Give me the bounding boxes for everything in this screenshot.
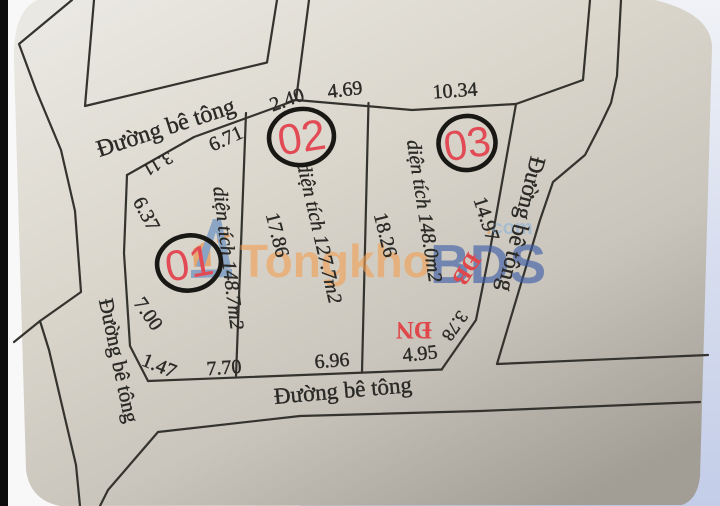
svg-text:7.70: 7.70 <box>206 356 242 380</box>
svg-text:02: 02 <box>274 111 329 166</box>
svg-text:6.96: 6.96 <box>314 349 350 373</box>
svg-text:4.95: 4.95 <box>401 341 438 367</box>
svg-text:03: 03 <box>440 117 493 171</box>
svg-text:4.69: 4.69 <box>326 77 363 103</box>
svg-text:ĐN: ĐN <box>396 316 432 343</box>
svg-text:10.34: 10.34 <box>432 78 478 103</box>
svg-text:01: 01 <box>161 236 216 292</box>
